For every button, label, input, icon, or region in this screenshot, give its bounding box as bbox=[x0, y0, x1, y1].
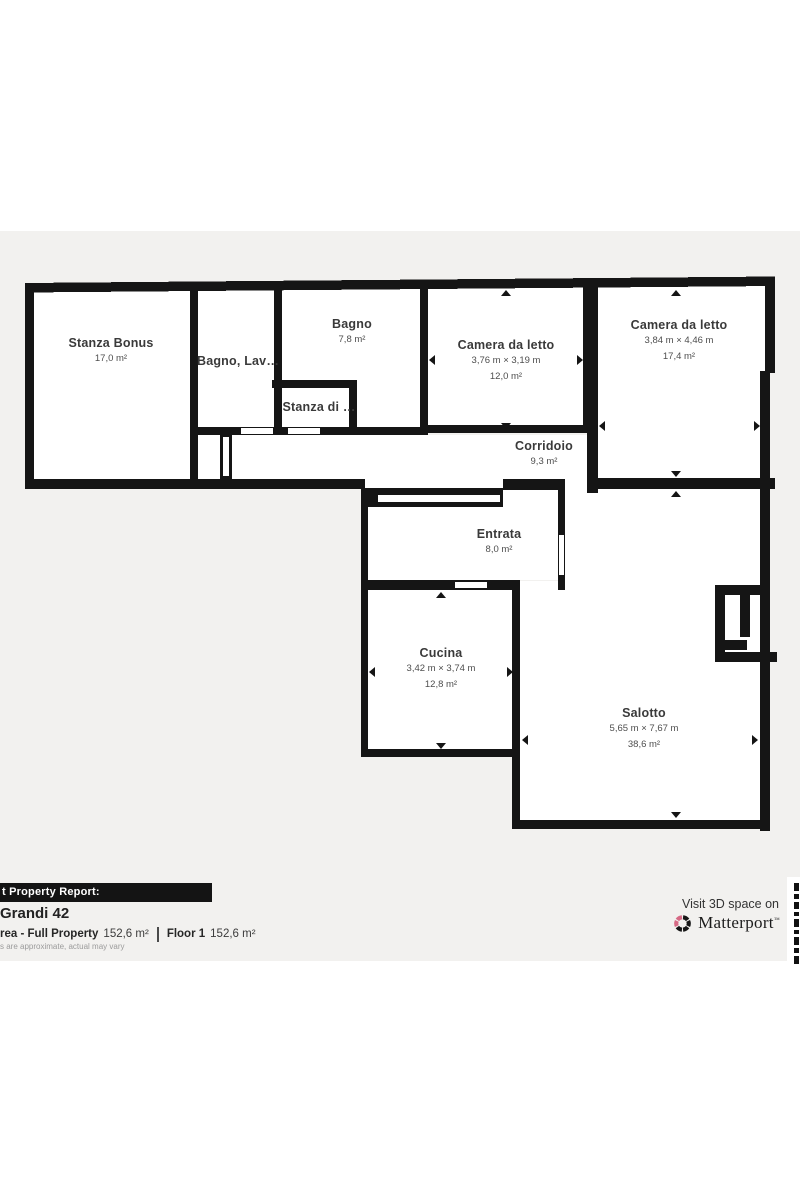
property-address: Grandi 42 bbox=[0, 905, 69, 922]
total-area-value: 152,6 m² bbox=[103, 928, 148, 940]
room-name: Corridoio bbox=[515, 439, 573, 454]
floor-value: 152,6 m² bbox=[210, 928, 255, 940]
floor-plan-page: { "plan": { "rooms": [ { "name": "Stanza… bbox=[0, 0, 800, 1200]
room-label-camera-da-letto-1: Camera da letto 3,76 m × 3,19 m 12,0 m² bbox=[458, 338, 555, 384]
report-bar: t Property Report: bbox=[0, 883, 212, 902]
room-name: Stanza Bonus bbox=[68, 336, 153, 351]
qr-code-fragment bbox=[787, 877, 800, 972]
room-name: Stanza di … bbox=[282, 400, 355, 415]
room-name: Bagno, Lav… bbox=[197, 354, 279, 369]
room-dims: 3,76 m × 3,19 m bbox=[458, 353, 555, 369]
room-name: Bagno bbox=[332, 317, 372, 332]
area-summary: rea - Full Property 152,6 m² Floor 1 152… bbox=[0, 926, 256, 942]
room-area: 38,6 m² bbox=[610, 737, 679, 753]
trademark-symbol: ™ bbox=[774, 917, 780, 923]
room-label-camera-da-letto-2: Camera da letto 3,84 m × 4,46 m 17,4 m² bbox=[631, 318, 728, 364]
room-area: 12,8 m² bbox=[407, 677, 476, 693]
room-name: Camera da letto bbox=[631, 318, 728, 333]
room-label-entrata: Entrata 8,0 m² bbox=[477, 527, 521, 558]
matterport-wordmark: Matterport™ bbox=[698, 913, 780, 933]
floor-plan-drawing bbox=[0, 0, 800, 1200]
room-name: Entrata bbox=[477, 527, 521, 542]
matterport-logo-icon bbox=[672, 913, 693, 934]
room-area: 8,0 m² bbox=[477, 542, 521, 558]
room-label-stanza-di: Stanza di … bbox=[282, 400, 355, 415]
room-area: 7,8 m² bbox=[332, 332, 372, 348]
room-dims: 3,42 m × 3,74 m bbox=[407, 661, 476, 677]
room-label-salotto: Salotto 5,65 m × 7,67 m 38,6 m² bbox=[610, 706, 679, 752]
room-label-bagno-lav: Bagno, Lav… bbox=[197, 354, 279, 369]
room-dims: 5,65 m × 7,67 m bbox=[610, 721, 679, 737]
total-area-label: rea - Full Property bbox=[0, 928, 98, 940]
room-name: Salotto bbox=[610, 706, 679, 721]
disclaimer-text: s are approximate, actual may vary bbox=[0, 942, 125, 951]
room-dims: 3,84 m × 4,46 m bbox=[631, 333, 728, 349]
room-area: 17,4 m² bbox=[631, 349, 728, 365]
visit-3d-text: Visit 3D space on bbox=[682, 897, 779, 911]
separator bbox=[157, 927, 159, 942]
room-label-bagno: Bagno 7,8 m² bbox=[332, 317, 372, 348]
room-area: 9,3 m² bbox=[515, 454, 573, 470]
room-name: Camera da letto bbox=[458, 338, 555, 353]
floor-label: Floor 1 bbox=[167, 928, 205, 940]
room-area: 12,0 m² bbox=[458, 369, 555, 385]
room-label-corridoio: Corridoio 9,3 m² bbox=[515, 439, 573, 470]
room-label-cucina: Cucina 3,42 m × 3,74 m 12,8 m² bbox=[407, 646, 476, 692]
matterport-link[interactable]: Matterport™ bbox=[672, 911, 780, 935]
room-name: Cucina bbox=[407, 646, 476, 661]
room-label-stanza-bonus: Stanza Bonus 17,0 m² bbox=[68, 336, 153, 367]
room-area: 17,0 m² bbox=[68, 351, 153, 367]
